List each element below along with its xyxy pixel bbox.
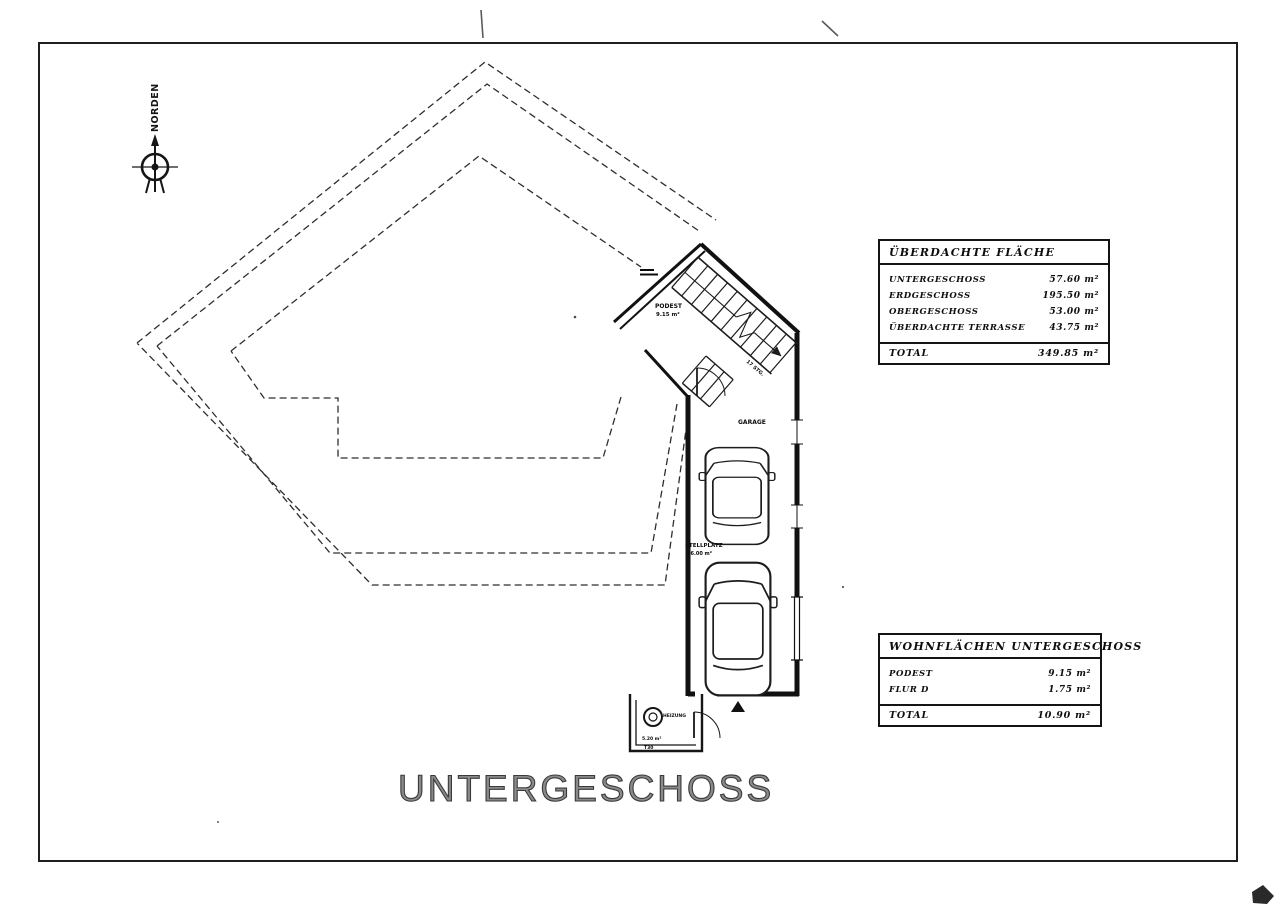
page-title: UNTERGESCHOSS [398,768,718,810]
table-row: ÜBERDACHTE TERRASSE 43.75 m² [889,320,1099,336]
car-top-view-1 [699,448,775,545]
row-label: PODEST [889,666,933,682]
row-value: 43.75 m² [1049,320,1099,336]
row-value: 53.00 m² [1049,304,1099,320]
covered-area-table: ÜBERDACHTE FLÄCHE UNTERGESCHOSS 57.60 m²… [878,239,1110,365]
building-outline-dashed [137,62,716,585]
stair-direction-break [728,307,763,342]
room-area-podest: 9.15 m² [656,311,680,318]
room-label-podest: PODEST [655,303,683,310]
boiler-icon [644,708,662,726]
table-total-row: TOTAL 10.90 m² [880,704,1100,725]
total-label: TOTAL [889,710,929,721]
scanned-floor-plan-sheet: { "sheet": { "title": "UNTERGESCHOSS" },… [0,0,1280,904]
door-swing [697,368,725,396]
room-label-garage: GARAGE [738,419,766,426]
table-row: UNTERGESCHOSS 57.60 m² [889,272,1099,288]
row-label: FLUR D [889,682,929,698]
row-label: OBERGESCHOSS [889,304,979,320]
table-row: OBERGESCHOSS 53.00 m² [889,304,1099,320]
table-row: PODEST 9.15 m² [889,666,1091,682]
table-row: FLUR D 1.75 m² [889,682,1091,698]
row-value: 9.15 m² [1048,666,1091,682]
utility-room [630,694,720,751]
row-value: 57.60 m² [1049,272,1099,288]
car-top-view-2 [699,563,777,696]
entrance-marker [731,701,745,712]
level-mark-smudge [640,270,658,275]
door-class-label: T30 [644,745,653,751]
living-area-table: WOHNFLÄCHEN UNTERGESCHOSS PODEST 9.15 m²… [878,633,1102,727]
room-area-heizung: 5.20 m² [642,736,661,742]
row-label: ERDGESCHOSS [889,288,971,304]
compass-label: NORDEN [150,83,161,132]
total-label: TOTAL [889,348,929,359]
table-header: WOHNFLÄCHEN UNTERGESCHOSS [880,635,1100,659]
room-label-heizung: HEIZUNG [663,713,686,719]
row-label: ÜBERDACHTE TERRASSE [889,320,1025,336]
row-value: 195.50 m² [1043,288,1099,304]
table-header: ÜBERDACHTE FLÄCHE [880,241,1108,265]
total-value: 10.90 m² [1037,710,1091,721]
table-total-row: TOTAL 349.85 m² [880,342,1108,363]
room-area-stellplatz: 36.00 m² [687,551,712,557]
table-row: ERDGESCHOSS 195.50 m² [889,288,1099,304]
row-value: 1.75 m² [1048,682,1091,698]
north-arrow-icon: NORDEN [132,83,178,193]
row-label: UNTERGESCHOSS [889,272,986,288]
total-value: 349.85 m² [1038,348,1099,359]
room-label-stellplatz: STELLPLATZ [685,543,723,549]
